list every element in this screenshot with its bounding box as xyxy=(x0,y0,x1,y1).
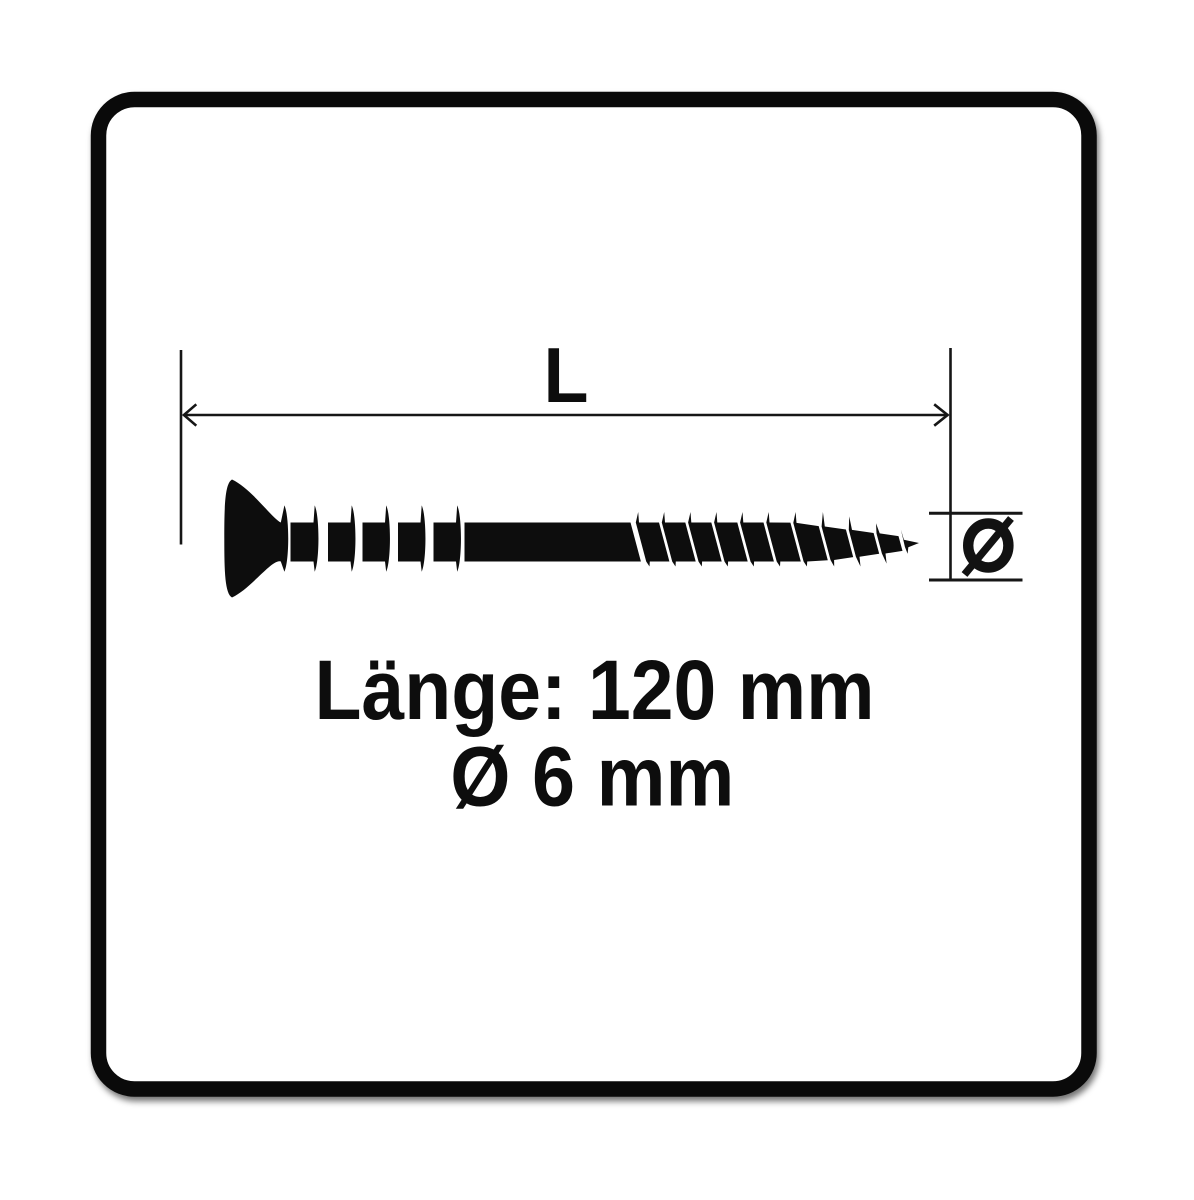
svg-text:L: L xyxy=(544,331,589,419)
svg-text:Länge: 120 mm: Länge: 120 mm xyxy=(315,643,875,737)
svg-text:Ø 6 mm: Ø 6 mm xyxy=(450,730,734,824)
